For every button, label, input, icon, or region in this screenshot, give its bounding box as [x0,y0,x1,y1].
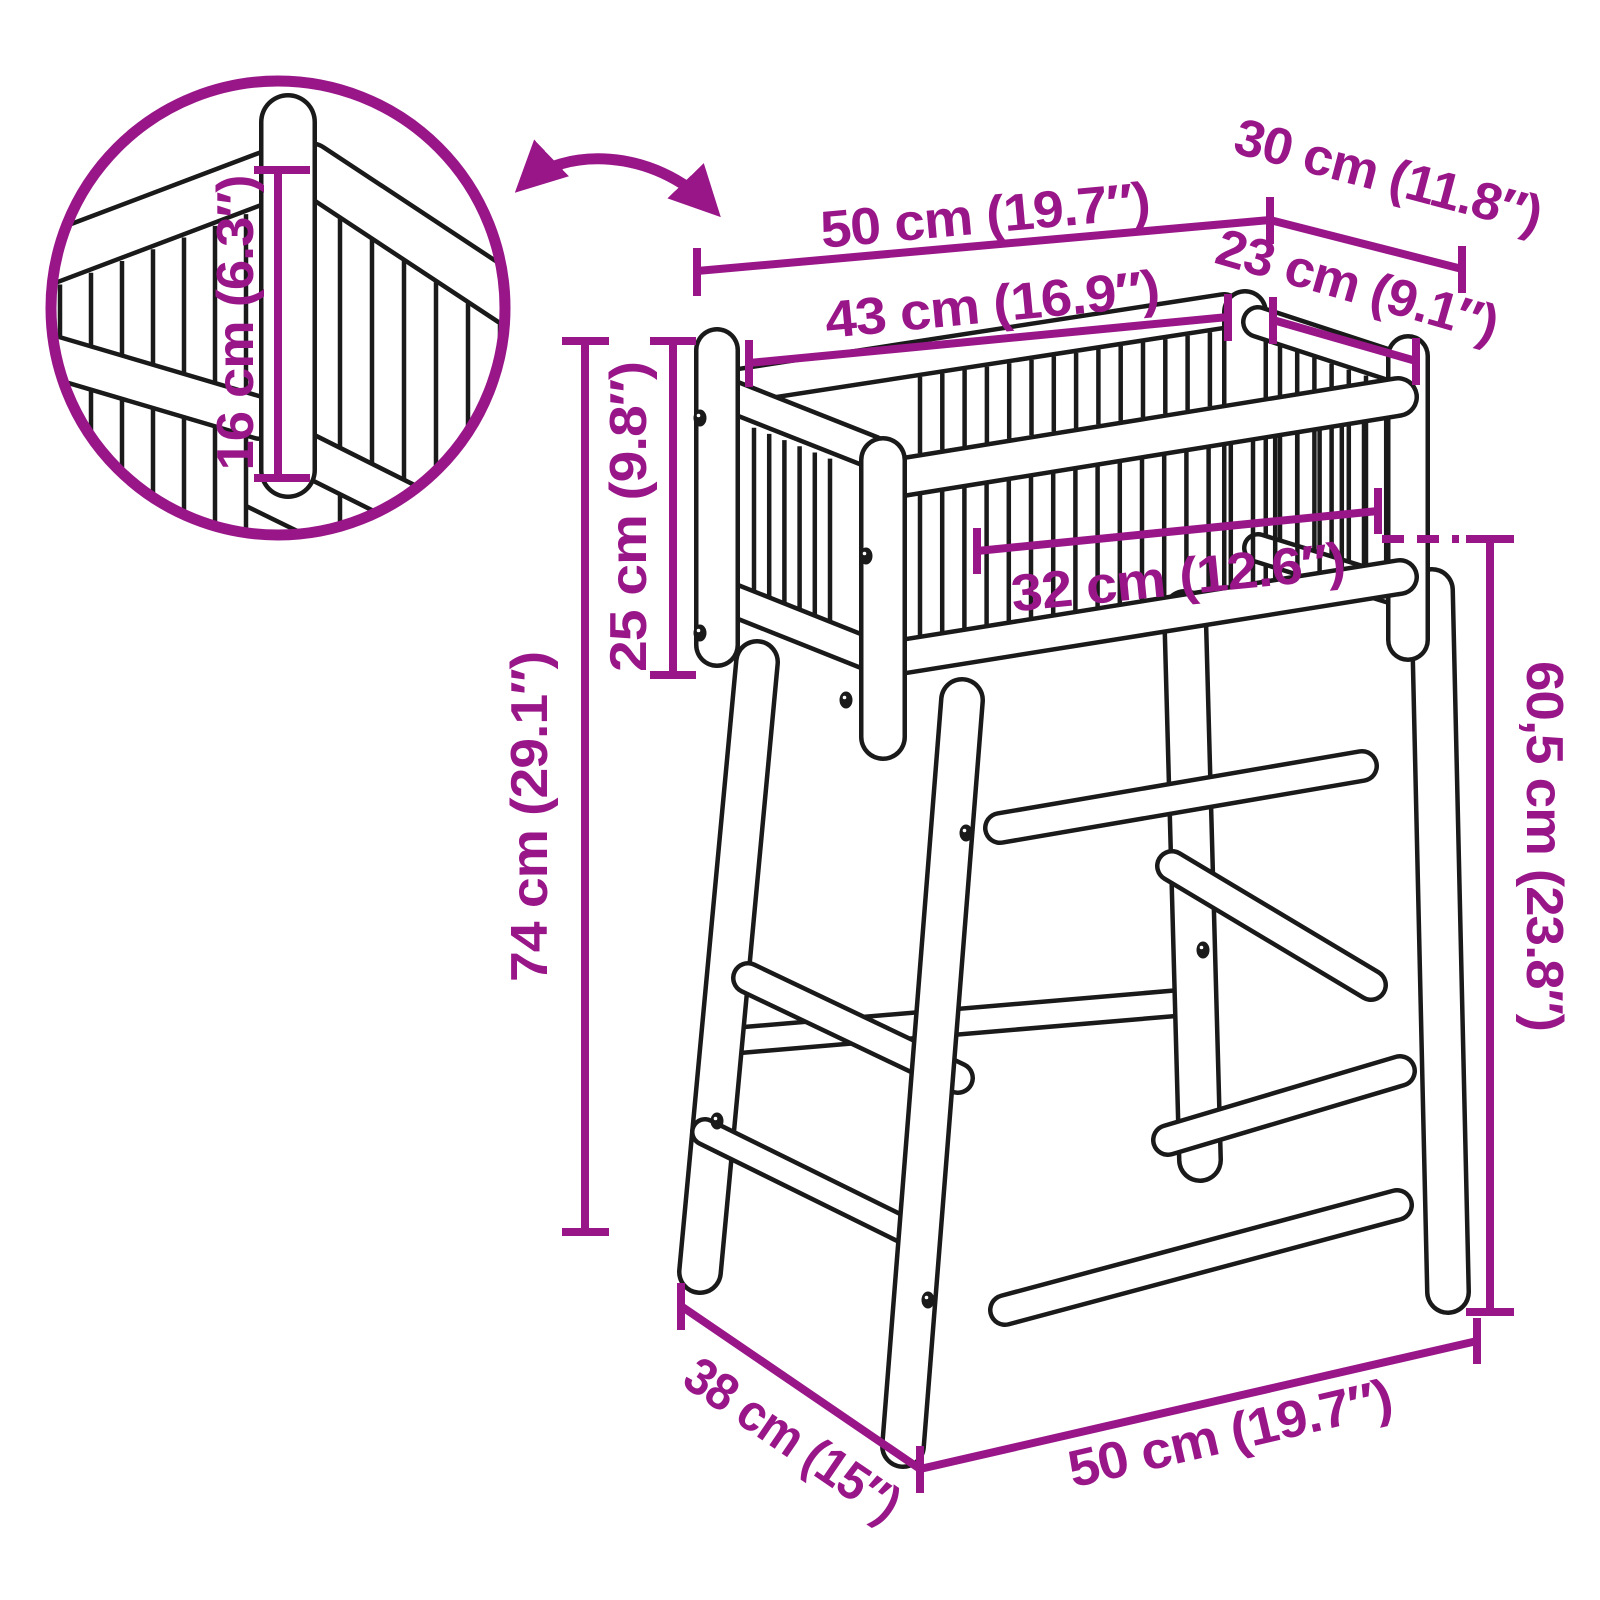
dim-label-detail-height: 16 cm (6.3″) [207,176,265,471]
dim-label-leg-height: 60,5 cm (23.8″) [1515,661,1573,1031]
dim-label-box-height: 25 cm (9.8″) [600,362,658,672]
dim-label-total-height: 74 cm (29.1″) [501,652,559,982]
product-dimension-diagram: 16 cm (6.3″) 50 cm (19.7″) 30 cm (11.8″)… [0,0,1600,1600]
